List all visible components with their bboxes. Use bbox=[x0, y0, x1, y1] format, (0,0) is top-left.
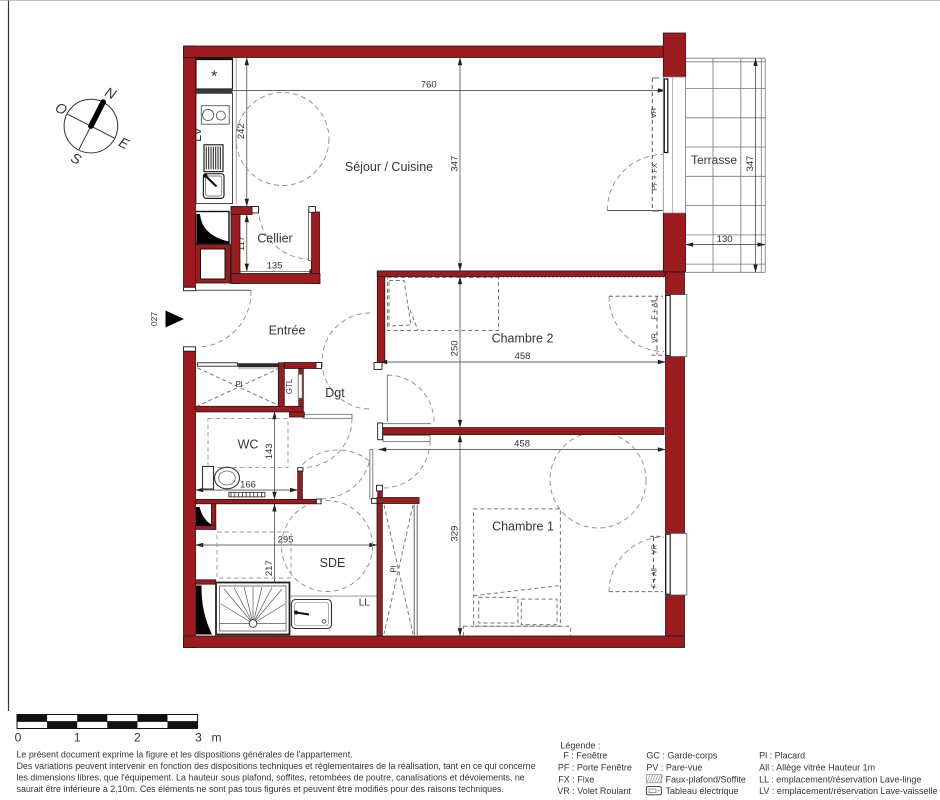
svg-text:1: 1 bbox=[74, 731, 81, 745]
svg-text:250: 250 bbox=[449, 340, 460, 356]
svg-text:Faux-plafond/Soffite: Faux-plafond/Soffite bbox=[666, 774, 746, 784]
svg-text:Tableau électrique: Tableau électrique bbox=[666, 786, 739, 796]
svg-text:m: m bbox=[212, 731, 222, 745]
svg-text:LL : emplacement/réservation L: LL : emplacement/réservation Lave-linge bbox=[759, 774, 921, 784]
svg-text:Chambre 2: Chambre 2 bbox=[492, 332, 554, 346]
svg-text:les dimensions libres, que l'é: les dimensions libres, que l'équipement.… bbox=[17, 773, 525, 783]
svg-text:0: 0 bbox=[15, 731, 22, 745]
svg-text:Des variations peuvent interve: Des variations peuvent intervenir en fon… bbox=[17, 761, 536, 771]
svg-text:347: 347 bbox=[745, 156, 756, 172]
svg-text:2: 2 bbox=[134, 731, 141, 745]
svg-text:Cellier: Cellier bbox=[257, 232, 292, 246]
svg-text:PF : Porte Fenêtre: PF : Porte Fenêtre bbox=[558, 762, 632, 772]
svg-text:F + All: F + All bbox=[651, 299, 658, 319]
svg-text:143: 143 bbox=[264, 443, 275, 459]
svg-text:Légende :: Légende : bbox=[560, 741, 600, 751]
svg-text:458: 458 bbox=[515, 351, 531, 362]
svg-text:VR: VR bbox=[651, 545, 658, 555]
svg-text:166: 166 bbox=[240, 479, 256, 490]
svg-text:Le présent document exprime la: Le présent document exprime la figure et… bbox=[17, 750, 353, 760]
svg-text:GTL: GTL bbox=[285, 378, 294, 394]
svg-text:All : Allège vitrée Hauteur 1m: All : Allège vitrée Hauteur 1m bbox=[759, 762, 875, 772]
svg-text:GC : Garde-corps: GC : Garde-corps bbox=[646, 751, 718, 761]
svg-text:242: 242 bbox=[236, 123, 247, 139]
svg-text:329: 329 bbox=[449, 526, 460, 542]
svg-text:760: 760 bbox=[421, 80, 437, 91]
svg-text:217: 217 bbox=[264, 560, 275, 576]
svg-text:WC: WC bbox=[238, 438, 259, 452]
svg-text:Entrée: Entrée bbox=[269, 324, 306, 338]
svg-text:F : Fenêtre: F : Fenêtre bbox=[563, 751, 607, 761]
svg-text:Pl: Pl bbox=[390, 565, 399, 572]
svg-text:LV : emplacement/réservation L: LV : emplacement/réservation Lave-vaisse… bbox=[759, 786, 937, 796]
svg-text:130: 130 bbox=[717, 234, 733, 245]
svg-text:PF + FX: PF + FX bbox=[650, 163, 659, 191]
svg-text:VR: VR bbox=[649, 107, 658, 118]
svg-text:458: 458 bbox=[514, 439, 530, 450]
svg-text:PV : Pare-vue: PV : Pare-vue bbox=[646, 762, 702, 772]
svg-text:*: * bbox=[211, 69, 217, 86]
svg-text:Pl : Placard: Pl : Placard bbox=[759, 751, 805, 761]
svg-text:Pl: Pl bbox=[235, 380, 242, 389]
svg-text:347: 347 bbox=[449, 156, 460, 172]
svg-text:VR : Volet Roulant: VR : Volet Roulant bbox=[557, 786, 631, 796]
svg-text:VR: VR bbox=[651, 333, 658, 343]
svg-text:LL: LL bbox=[359, 598, 371, 609]
svg-text:Séjour / Cuisine: Séjour / Cuisine bbox=[345, 160, 433, 174]
svg-text:027: 027 bbox=[149, 312, 159, 326]
svg-text:SDE: SDE bbox=[320, 556, 346, 570]
svg-text:F + All: F + All bbox=[651, 568, 658, 588]
svg-text:3: 3 bbox=[195, 731, 202, 745]
svg-text:135: 135 bbox=[267, 261, 283, 272]
svg-text:Chambre 1: Chambre 1 bbox=[492, 520, 554, 534]
svg-text:FX : Fixe: FX : Fixe bbox=[558, 774, 594, 784]
svg-text:Terrasse: Terrasse bbox=[691, 153, 737, 167]
svg-text:Dgt: Dgt bbox=[325, 386, 345, 400]
svg-text:saurait être inférieure à 2,10: saurait être inférieure à 2,10m. Ces élé… bbox=[17, 784, 504, 794]
